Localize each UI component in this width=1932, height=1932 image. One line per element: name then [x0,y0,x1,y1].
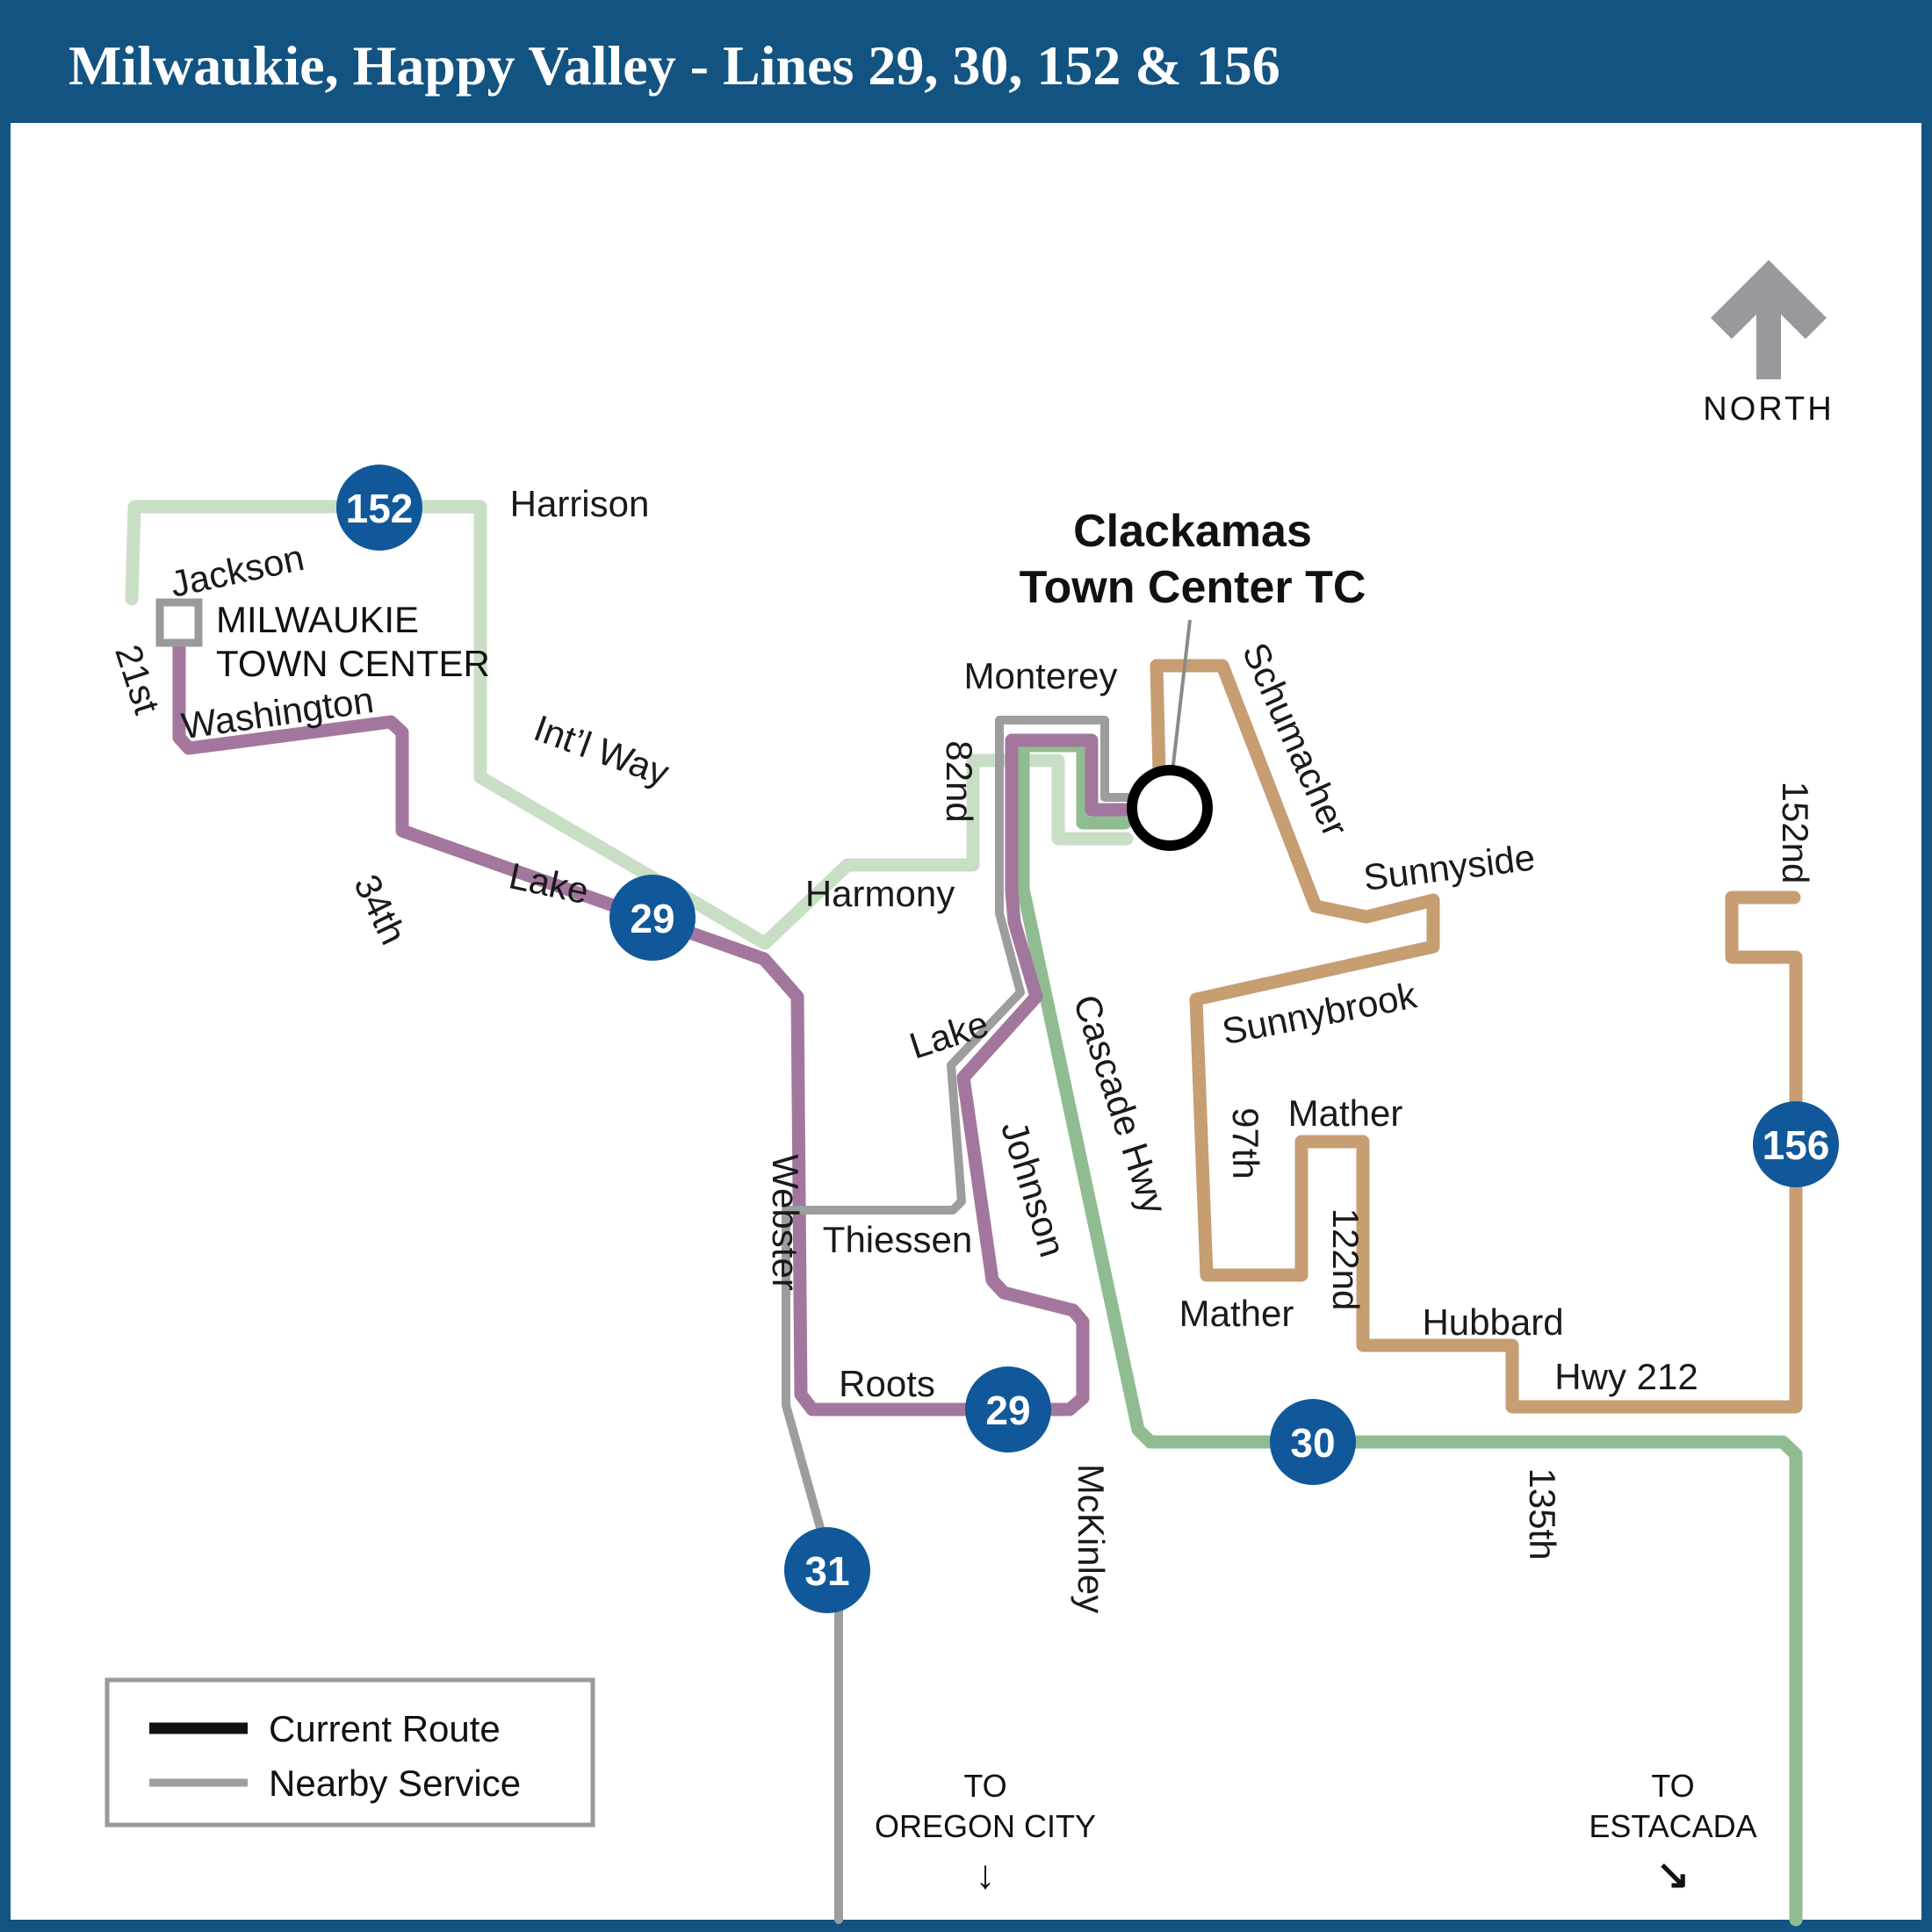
legend: Current Route Nearby Service [107,1680,593,1825]
north-arrow-shaft [1756,299,1781,379]
street-label-roots: Roots [839,1363,935,1404]
legend-current-route-label: Current Route [269,1708,501,1749]
street-label-harmony: Harmony [805,873,955,914]
to-oregon-city-line1: TO [963,1768,1006,1804]
milwaukie-town-center-marker [160,602,198,643]
transit-map-canvas: Milwaukie, Happy Valley - Lines 29, 30, … [0,0,1932,1932]
badge-156-label: 156 [1763,1122,1830,1168]
street-label-hubbard: Hubbard [1422,1301,1563,1343]
down-arrow-icon: ↓ [976,1851,996,1897]
clackamas-tc-label-line2: Town Center TC [1020,562,1366,613]
page-title: Milwaukie, Happy Valley - Lines 29, 30, … [68,34,1280,97]
to-oregon-city-line2: OREGON CITY [875,1808,1096,1844]
badge-29-roots-label: 29 [985,1388,1030,1433]
street-label-135th: 135th [1522,1467,1563,1560]
map-background [0,0,1932,1932]
frame-bottom [0,1920,1932,1932]
street-label-webster: Webster [765,1154,806,1291]
to-estacada-line2: ESTACADA [1589,1808,1756,1844]
north-label: NORTH [1703,391,1834,428]
frame-left [0,123,11,1932]
badge-30-label: 30 [1290,1420,1335,1466]
clackamas-tc-label-line1: Clackamas [1073,506,1312,557]
badge-29-lake-label: 29 [630,896,674,941]
street-label-152nd: 152nd [1775,782,1816,884]
street-label-122nd: 122nd [1325,1208,1366,1311]
badge-31-label: 31 [804,1548,849,1594]
street-label-mather-top: Mather [1288,1092,1403,1134]
badge-152: 152 [336,465,422,551]
street-label-mather-bottom: Mather [1179,1293,1294,1334]
legend-nearby-service-label: Nearby Service [269,1763,521,1804]
clackamas-town-center-marker [1132,770,1207,846]
street-label-monterey: Monterey [963,655,1117,696]
badge-29-lake: 29 [609,875,696,961]
street-label-82nd: 82nd [939,740,980,822]
milwaukie-tc-label-line1: MILWAUKIE [216,599,419,640]
to-estacada-line1: TO [1651,1768,1694,1804]
street-label-mckinley: McKinley [1071,1464,1112,1613]
badge-29-roots: 29 [965,1366,1051,1453]
badge-156: 156 [1753,1101,1839,1187]
street-label-thiessen: Thiessen [823,1219,972,1260]
street-label-hwy-212: Hwy 212 [1554,1356,1698,1397]
frame-right [1921,123,1932,1932]
badge-31: 31 [784,1527,870,1613]
badge-152-label: 152 [346,486,414,531]
badge-30: 30 [1270,1399,1356,1485]
down-right-arrow-icon: ↘ [1656,1851,1690,1897]
street-label-97th: 97th [1225,1107,1266,1179]
milwaukie-tc-label-line2: TOWN CENTER [216,643,490,684]
street-label-harrison: Harrison [510,483,650,524]
transit-map-page: Milwaukie, Happy Valley - Lines 29, 30, … [0,0,1932,1932]
